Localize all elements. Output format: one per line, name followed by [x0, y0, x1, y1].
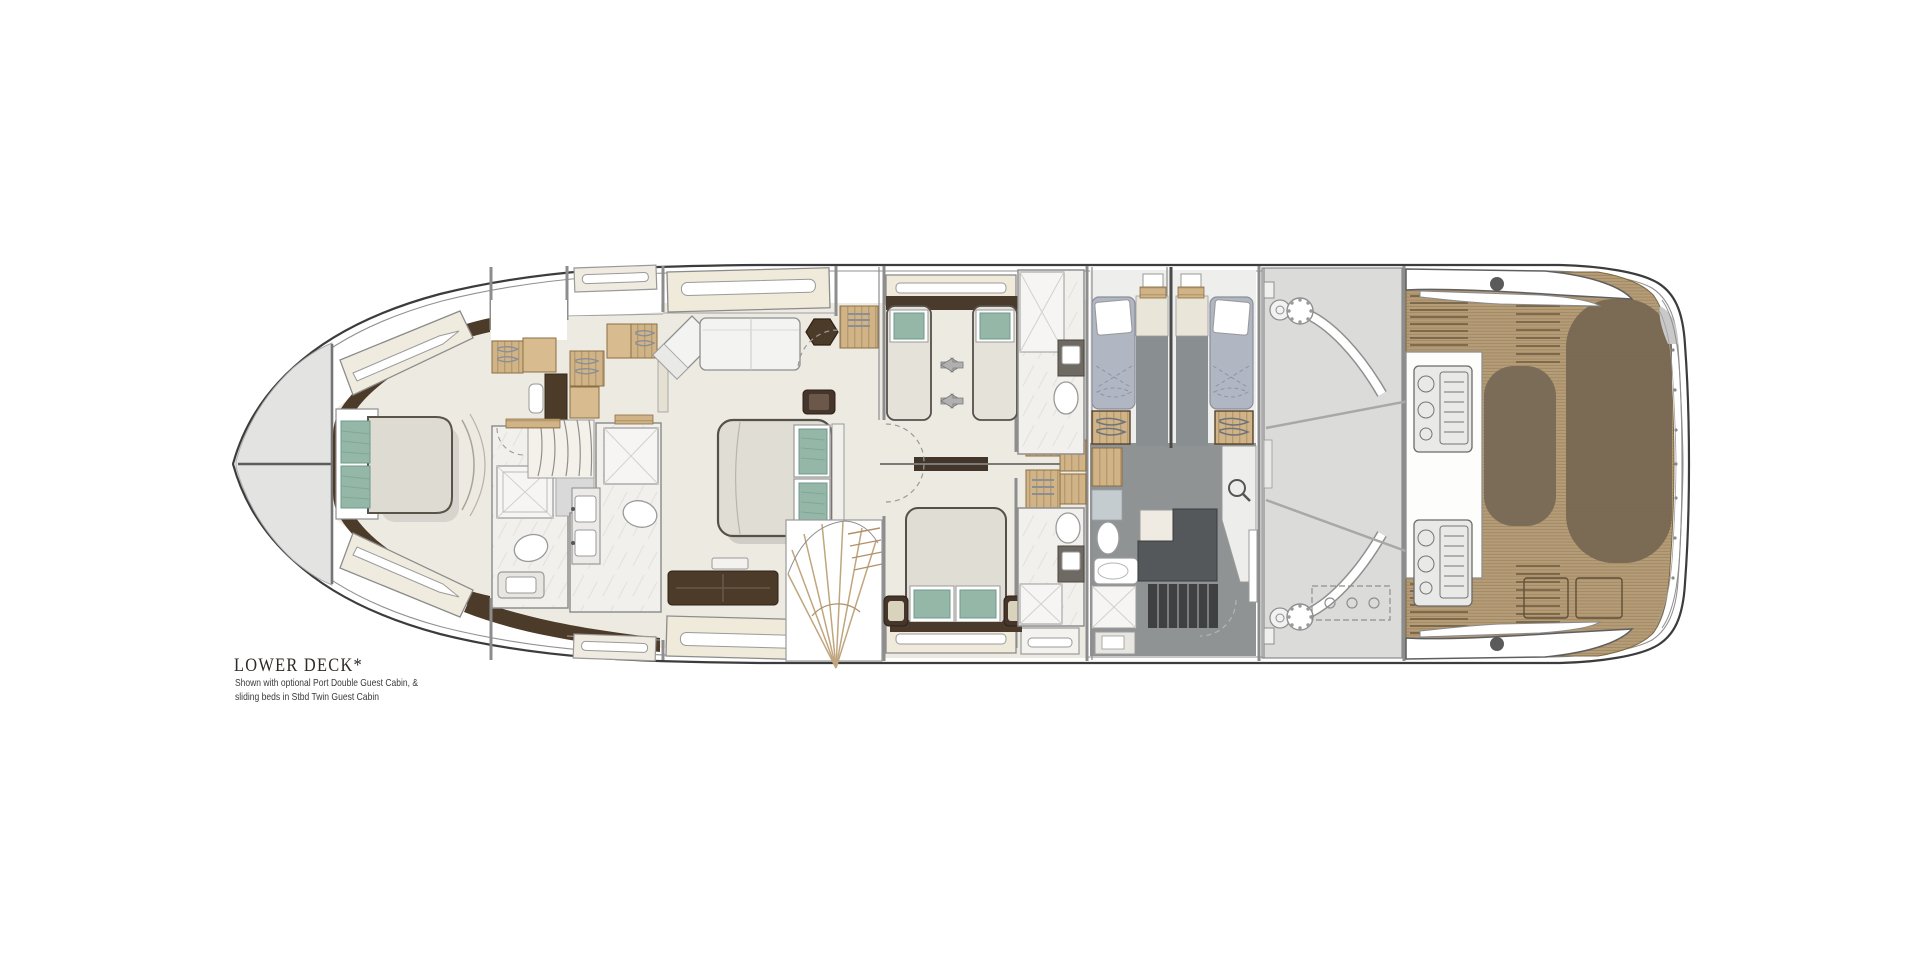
svg-text:Shown with optional Port Doubl: Shown with optional Port Double Guest Ca…: [235, 677, 418, 689]
svg-text:sliding beds in Stbd Twin Gues: sliding beds in Stbd Twin Guest Cabin: [235, 691, 379, 703]
svg-text:LOWER DECK*: LOWER DECK*: [234, 655, 363, 676]
